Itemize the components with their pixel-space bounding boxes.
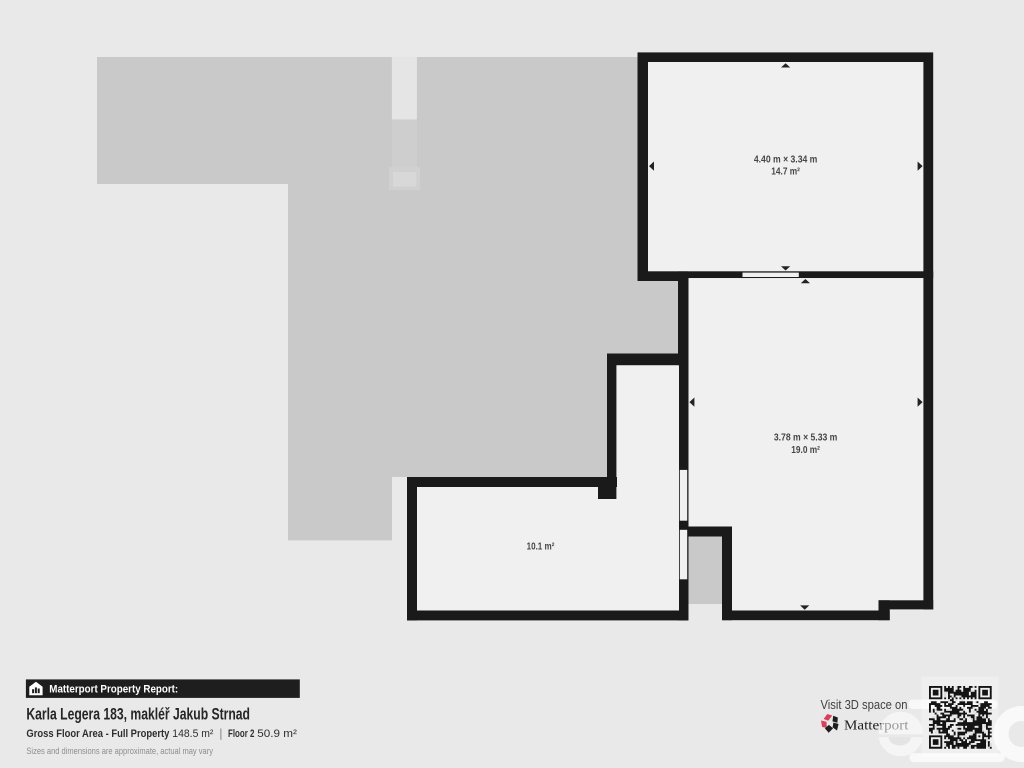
svg-text:Gross Floor Area - Full Proper: Gross Floor Area - Full Property — [26, 728, 169, 740]
svg-text:50.9 m²: 50.9 m² — [257, 728, 297, 740]
svg-text:3.78 m × 5.33 m: 3.78 m × 5.33 m — [774, 432, 838, 443]
svg-text:Karla Legera 183, makléř Jakub: Karla Legera 183, makléř Jakub Strnad — [26, 706, 250, 724]
svg-text:Visit 3D space on: Visit 3D space on — [821, 697, 908, 712]
svg-text:148.5 m²: 148.5 m² — [172, 728, 213, 740]
svg-text:19.0 m²: 19.0 m² — [791, 445, 820, 456]
svg-text:Matterport Property Report:: Matterport Property Report: — [49, 683, 178, 695]
svg-text:Floor 2: Floor 2 — [228, 728, 254, 740]
svg-text:4.40 m × 3.34 m: 4.40 m × 3.34 m — [754, 154, 818, 165]
svg-text:Sizes and dimensions are appro: Sizes and dimensions are approximate, ac… — [26, 746, 213, 757]
svg-text:14.7 m²: 14.7 m² — [771, 167, 800, 178]
svg-text:10.1 m²: 10.1 m² — [527, 542, 555, 553]
